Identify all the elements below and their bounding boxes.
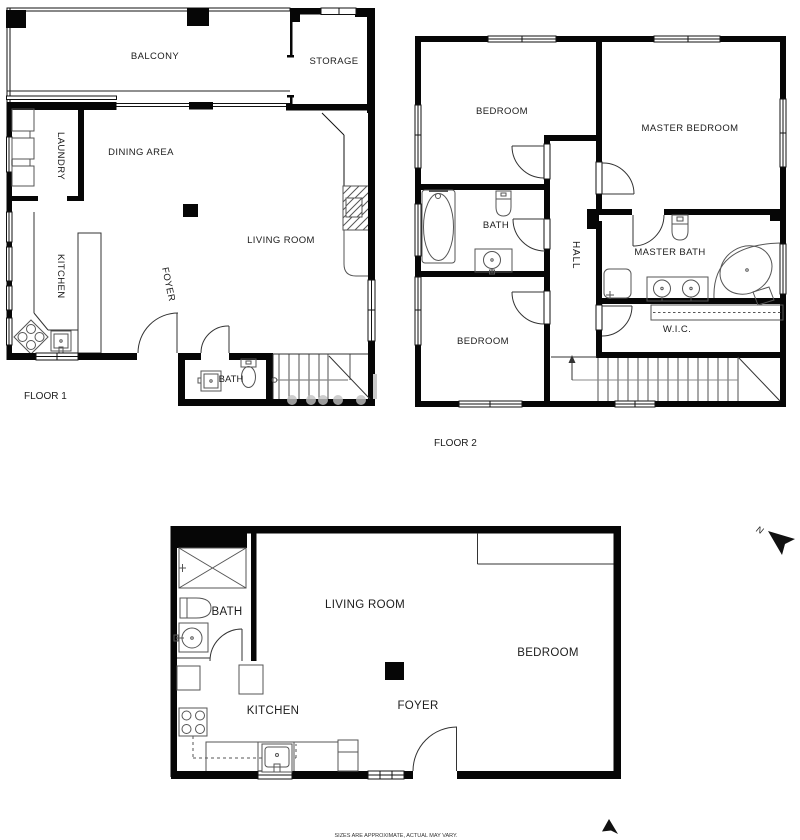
svg-text:SIZES ARE APPROXIMATE, ACTUAL: SIZES ARE APPROXIMATE, ACTUAL MAY VARY.: [335, 833, 458, 839]
svg-text:FOYER: FOYER: [397, 700, 438, 712]
svg-text:BATH: BATH: [219, 374, 244, 385]
svg-text:BATH: BATH: [483, 220, 509, 231]
svg-text:LIVING ROOM: LIVING ROOM: [325, 599, 405, 611]
svg-text:BATH: BATH: [211, 606, 242, 618]
svg-text:BEDROOM: BEDROOM: [517, 647, 579, 659]
svg-text:BEDROOM: BEDROOM: [476, 106, 528, 117]
svg-text:KITCHEN: KITCHEN: [247, 705, 300, 717]
svg-text:FLOOR 1: FLOOR 1: [24, 391, 67, 402]
svg-text:LIVING ROOM: LIVING ROOM: [247, 235, 315, 246]
svg-text:DINING AREA: DINING AREA: [108, 147, 174, 158]
svg-text:FLOOR 2: FLOOR 2: [434, 438, 477, 449]
svg-text:MASTER BATH: MASTER BATH: [634, 247, 705, 258]
svg-text:W.I.C.: W.I.C.: [663, 324, 691, 335]
svg-text:LAUNDRY: LAUNDRY: [55, 132, 66, 180]
svg-text:MASTER BEDROOM: MASTER BEDROOM: [642, 123, 739, 134]
svg-text:BEDROOM: BEDROOM: [457, 336, 509, 347]
svg-text:BALCONY: BALCONY: [131, 51, 179, 62]
svg-text:HALL: HALL: [570, 241, 581, 269]
svg-text:STORAGE: STORAGE: [309, 56, 358, 67]
svg-text:KITCHEN: KITCHEN: [55, 254, 66, 299]
